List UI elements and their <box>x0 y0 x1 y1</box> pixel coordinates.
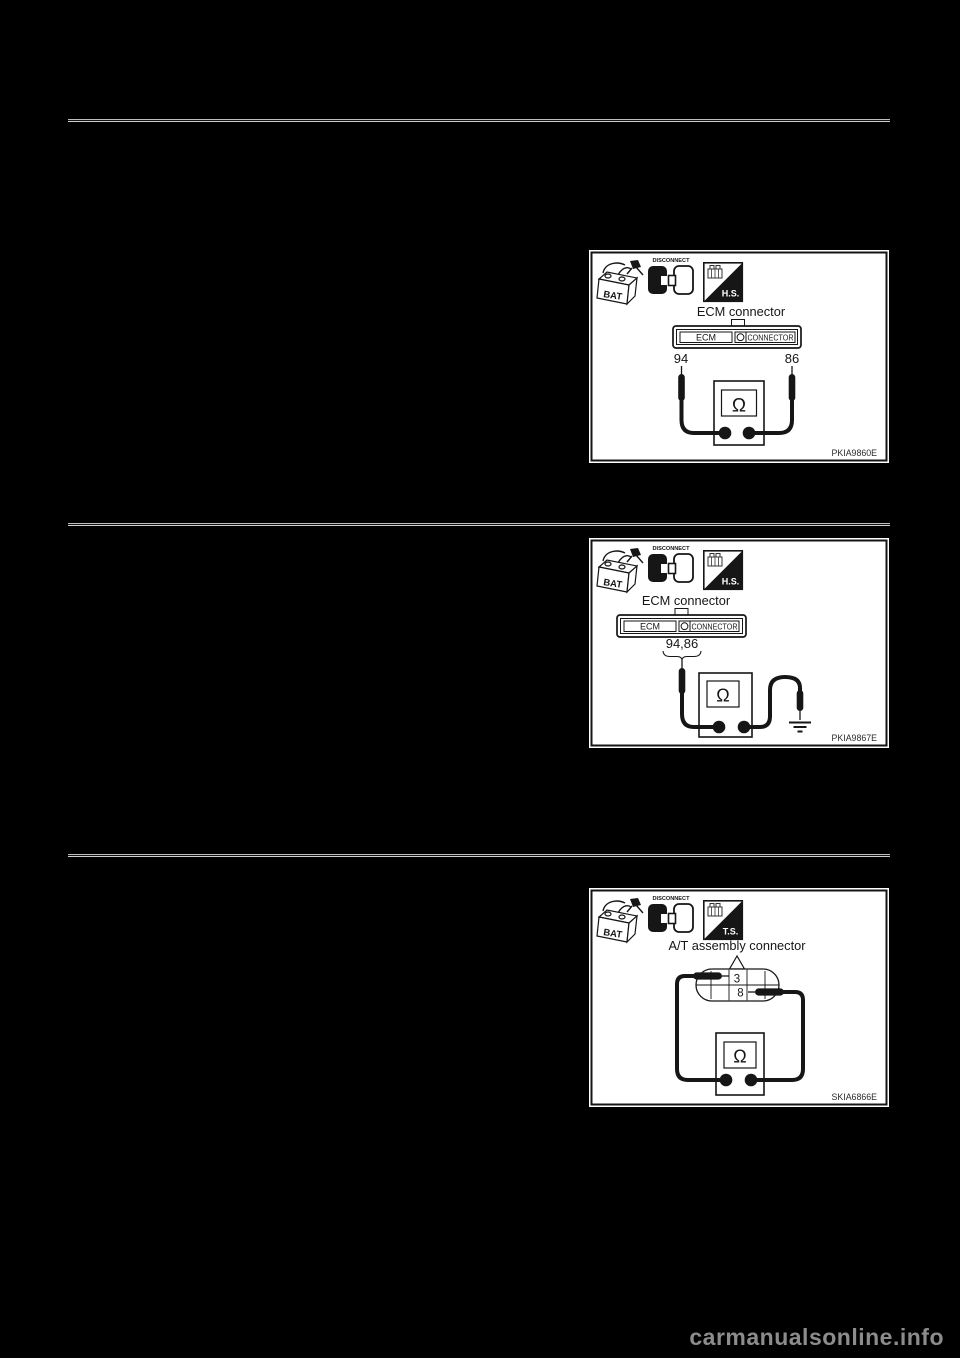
meter-terminal-dot <box>719 427 732 440</box>
connector-connector-label: CONNECTOR <box>748 333 794 342</box>
meter-terminal-dot <box>738 721 751 734</box>
figure-3-drawing: BAT DISCONNECT T.S. A/T assembly connect… <box>589 888 889 1107</box>
figure-title: ECM connector <box>697 304 786 319</box>
figure-at-assembly-connector-check: BAT DISCONNECT T.S. A/T assembly connect… <box>589 888 889 1107</box>
figure-1-drawing: BAT DISCONNECT H.S. ECM connector ECM CO… <box>589 250 889 463</box>
ohm-symbol: Ω <box>733 1047 746 1067</box>
meter-terminal-dot <box>743 427 756 440</box>
ohm-symbol: Ω <box>732 396 746 417</box>
figure-ecm-connector-continuity: BAT DISCONNECT H.S. ECM connector ECM CO… <box>589 250 889 463</box>
figure-ecm-connector-ground-check: BAT DISCONNECT H.S. ECM connector ECM CO… <box>589 538 889 748</box>
watermark: carmanualsonline.info <box>689 1324 944 1351</box>
meter-terminal-dot <box>720 1074 733 1087</box>
hs-label: H.S. <box>722 289 740 299</box>
figure-title: A/T assembly connector <box>668 938 806 953</box>
terminal-86-label: 86 <box>785 351 799 366</box>
ts-label: T.S. <box>723 927 739 937</box>
section-divider-line <box>68 854 890 857</box>
figure-code: PKIA9860E <box>832 448 878 458</box>
section-divider-line <box>68 523 890 526</box>
ohm-symbol: Ω <box>716 686 729 706</box>
ts-tool-icon: T.S. <box>704 901 743 940</box>
terminals-94-86-label: 94,86 <box>666 636 699 651</box>
connector-ecm-label: ECM <box>640 622 660 632</box>
figure-title: ECM connector <box>642 593 731 608</box>
figure-code: SKIA6866E <box>832 1092 878 1102</box>
terminal-8-label: 8 <box>737 988 743 1000</box>
section-divider-line <box>68 119 890 122</box>
hs-tool-icon: H.S. <box>704 551 743 590</box>
connector-connector-label: CONNECTOR <box>692 622 738 631</box>
connector-ecm-label: ECM <box>696 333 716 343</box>
disconnect-icon-label: DISCONNECT <box>653 258 691 264</box>
ohmmeter: Ω <box>716 1033 764 1095</box>
hs-label: H.S. <box>722 577 740 587</box>
figure-2-drawing: BAT DISCONNECT H.S. ECM connector ECM CO… <box>589 538 889 748</box>
hs-tool-icon: H.S. <box>704 263 743 302</box>
disconnect-icon-label: DISCONNECT <box>653 546 691 552</box>
terminal-94-label: 94 <box>674 351 688 366</box>
disconnect-icon-label: DISCONNECT <box>653 896 691 902</box>
figure-code: PKIA9867E <box>832 733 878 743</box>
meter-terminal-dot <box>713 721 726 734</box>
meter-terminal-dot <box>745 1074 758 1087</box>
terminal-3-label: 3 <box>734 974 740 986</box>
